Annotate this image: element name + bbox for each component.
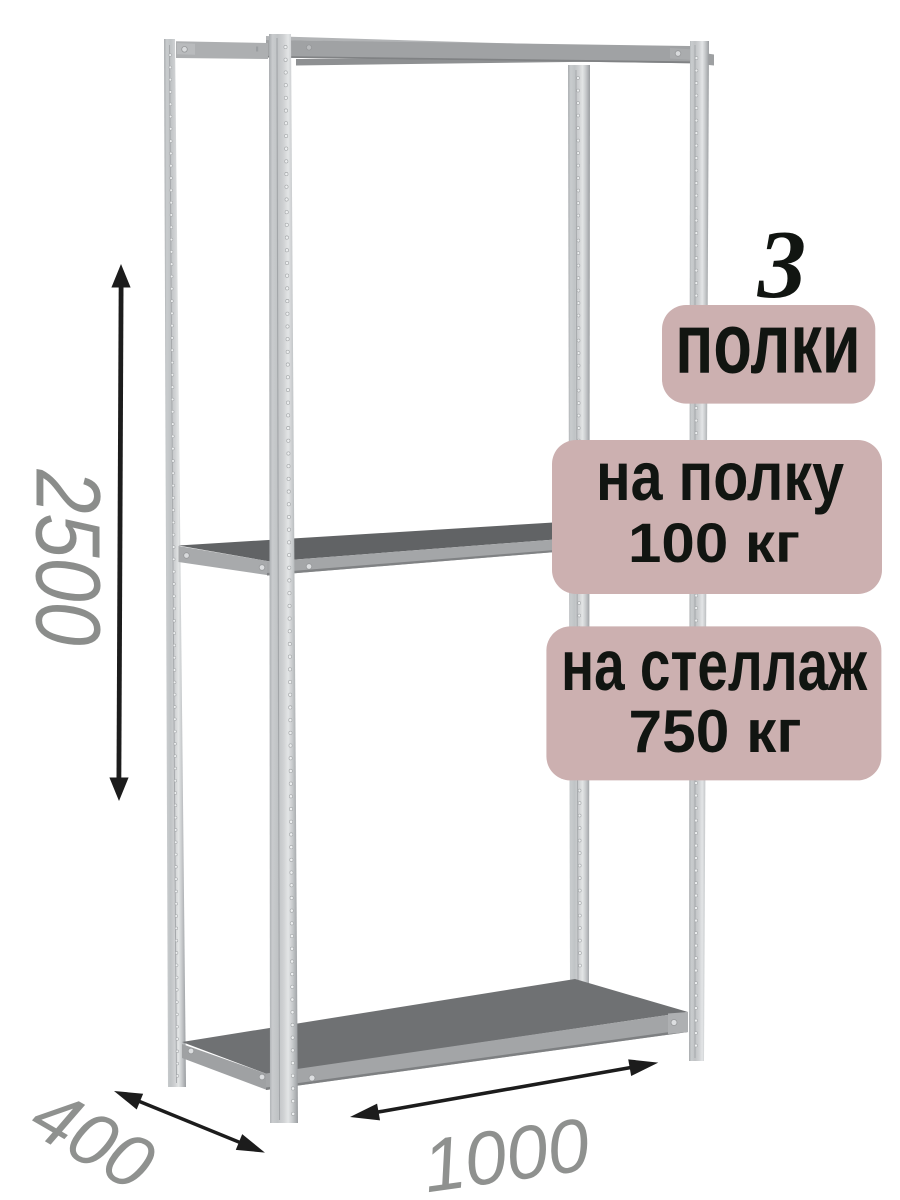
svg-text:100 кг: 100 кг: [628, 511, 800, 574]
svg-text:полки: полки: [675, 297, 860, 392]
svg-text:на стеллаж: на стеллаж: [561, 627, 868, 706]
svg-text:на полку: на полку: [596, 438, 844, 515]
svg-text:750 кг: 750 кг: [629, 698, 802, 765]
svg-text:2500: 2500: [17, 469, 119, 646]
